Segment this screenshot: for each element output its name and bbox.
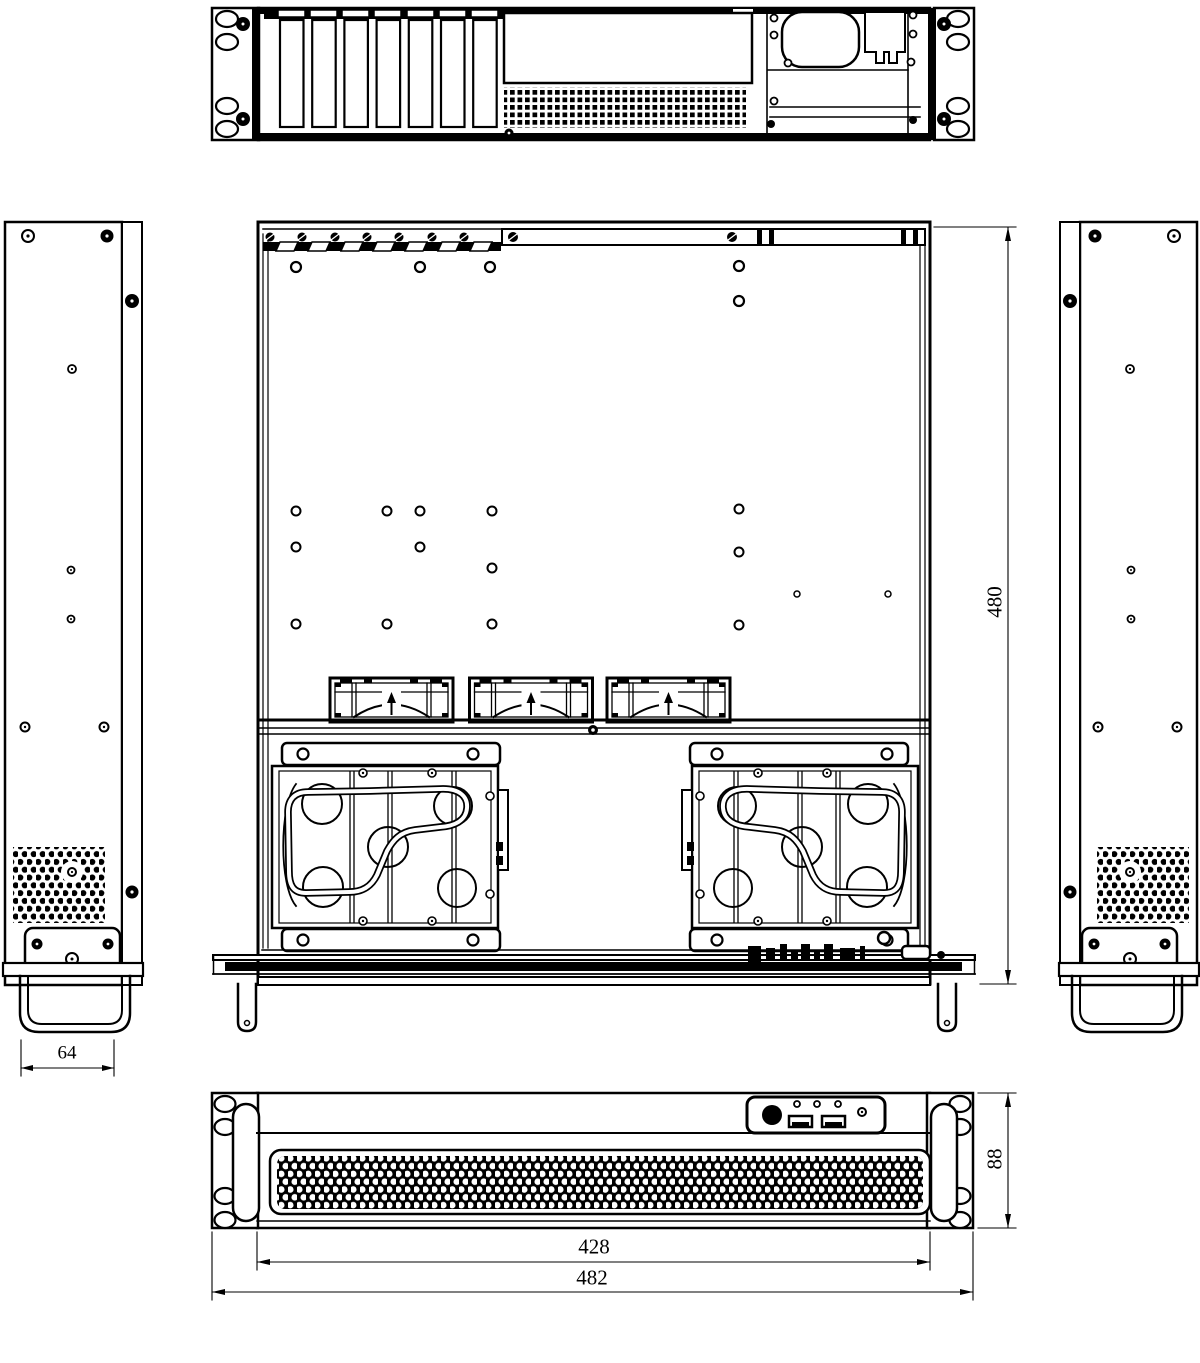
- expansion-slot: [312, 20, 336, 127]
- rear-vent-grille: [504, 87, 746, 128]
- dim-label-front-overall-width: 482: [576, 1268, 608, 1289]
- fan-row: [330, 678, 730, 722]
- front-view: [212, 1093, 973, 1228]
- rack-ear-left: [212, 8, 259, 140]
- drive-tray-left: [272, 743, 508, 951]
- expansion-slot: [344, 20, 368, 127]
- front-foot-left: [238, 984, 256, 1031]
- psu-fan-cutout: [782, 12, 859, 67]
- io-window: [504, 13, 752, 83]
- expansion-slot: [473, 20, 497, 127]
- front-handle-left: [233, 1104, 259, 1221]
- drawing-canvas: 64 480 88 428 482: [0, 0, 1200, 1363]
- led-indicator: [835, 1101, 841, 1107]
- led-indicator: [794, 1101, 800, 1107]
- expansion-slot: [441, 20, 465, 127]
- side-view-left: [3, 222, 143, 1032]
- fan-unit: [607, 678, 730, 722]
- side-view-right: [1059, 222, 1199, 1032]
- power-button: [762, 1105, 782, 1125]
- plan-view: [213, 222, 975, 1031]
- led-indicator: [814, 1101, 820, 1107]
- front-handle-right: [931, 1104, 957, 1221]
- rear-top-rail: [502, 229, 925, 245]
- dim-label-front-inner-width: 428: [578, 1237, 610, 1258]
- control-panel: [747, 1097, 885, 1133]
- dim-label-chassis-depth: 480: [985, 586, 1006, 618]
- dim-label-front-height: 88: [985, 1149, 1006, 1170]
- technical-drawing: [0, 0, 1200, 1363]
- fan-unit: [330, 678, 453, 722]
- front-foot-right: [938, 984, 956, 1031]
- drive-tray-right: [682, 743, 918, 951]
- expansion-slot: [280, 20, 304, 127]
- expansion-slot: [409, 20, 433, 127]
- expansion-slot: [377, 20, 401, 127]
- fan-unit: [470, 678, 593, 722]
- rear-view: [212, 8, 974, 140]
- dim-label-handle-width: 64: [58, 1044, 77, 1063]
